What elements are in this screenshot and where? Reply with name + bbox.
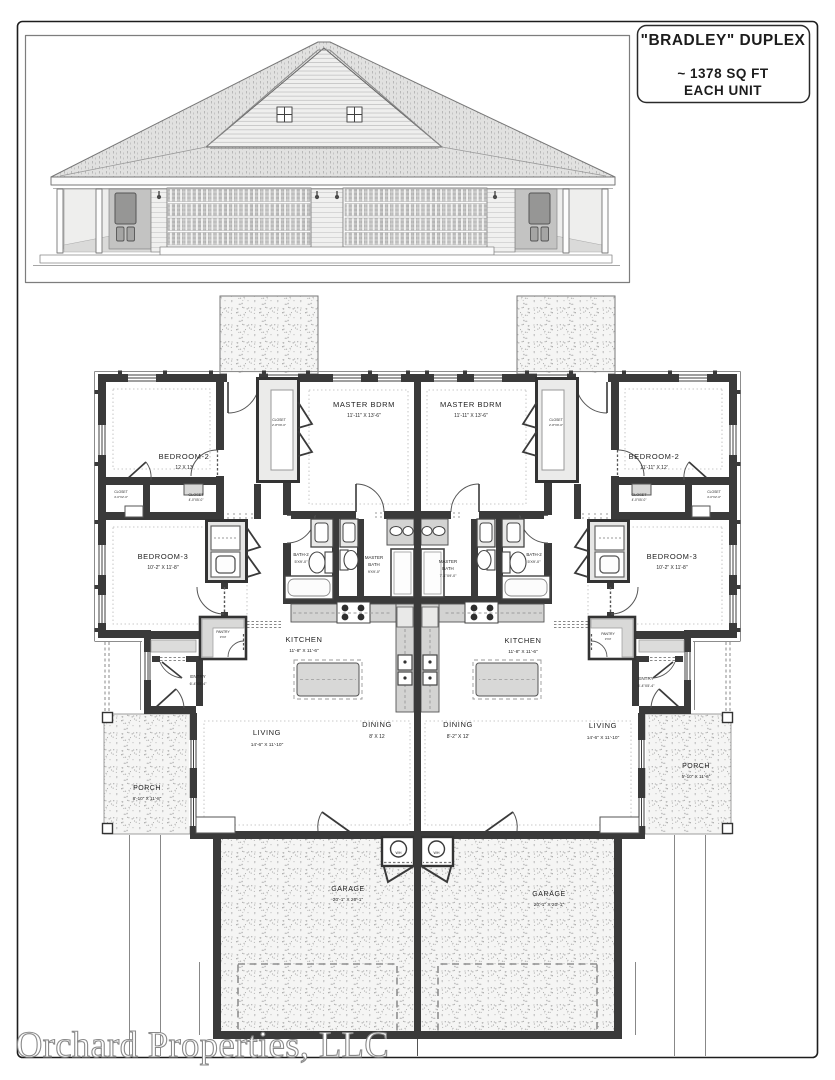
svg-text:CLOSET: CLOSET	[707, 490, 721, 494]
svg-text:20'-1" X 20'-1": 20'-1" X 20'-1"	[534, 902, 565, 908]
svg-text:10'-2" X 11'-8": 10'-2" X 11'-8"	[656, 565, 687, 571]
svg-text:PORCH: PORCH	[133, 785, 161, 792]
svg-text:2'-8"X9'-0": 2'-8"X9'-0"	[549, 423, 563, 427]
svg-text:"BRADLEY" DUPLEX: "BRADLEY" DUPLEX	[641, 32, 806, 49]
svg-text:11'-11" X 13'-6": 11'-11" X 13'-6"	[347, 413, 381, 419]
svg-text:PORCH: PORCH	[682, 763, 710, 770]
svg-text:CLOSET: CLOSET	[549, 418, 563, 422]
svg-text:CLOSET: CLOSET	[188, 493, 204, 497]
svg-text:BEDROOM-3: BEDROOM-3	[138, 552, 189, 561]
svg-text:10'-2" X 11'-8": 10'-2" X 11'-8"	[147, 565, 178, 571]
svg-text:PANTRY: PANTRY	[601, 632, 615, 636]
svg-text:MASTER: MASTER	[439, 559, 457, 564]
svg-text:5'-10" X 11'-6": 5'-10" X 11'-6"	[682, 774, 711, 779]
svg-text:6'-4"X5'-4": 6'-4"X5'-4"	[638, 684, 655, 688]
svg-text:ENTRY: ENTRY	[190, 674, 206, 679]
svg-text:DINING: DINING	[443, 720, 473, 729]
svg-text:7'-1"X9'-0": 7'-1"X9'-0"	[440, 574, 457, 578]
svg-text:WH: WH	[396, 851, 402, 855]
svg-text:12 X 13: 12 X 13	[175, 465, 192, 471]
svg-text:PANTRY: PANTRY	[216, 630, 230, 634]
svg-text:14'-6" X 11'-10": 14'-6" X 11'-10"	[251, 742, 284, 748]
svg-text:BATH: BATH	[442, 566, 453, 571]
svg-text:DINING: DINING	[362, 720, 392, 729]
svg-text:3'X3': 3'X3'	[605, 637, 612, 641]
svg-text:9'X9'-0": 9'X9'-0"	[368, 570, 381, 574]
svg-text:Orchard Properties, LLC: Orchard Properties, LLC	[16, 1024, 389, 1065]
svg-text:ENTRY: ENTRY	[638, 676, 654, 681]
svg-text:8'-10" X 11'-8": 8'-10" X 11'-8"	[133, 796, 162, 801]
svg-text:GARAGE: GARAGE	[331, 886, 365, 893]
svg-text:~ 1378 SQ FT: ~ 1378 SQ FT	[677, 66, 768, 81]
svg-text:MASTER BDRM: MASTER BDRM	[333, 400, 395, 409]
svg-text:2'-8"X9'-0": 2'-8"X9'-0"	[272, 423, 286, 427]
svg-text:LIVING: LIVING	[253, 728, 281, 737]
svg-text:5'X9'-0": 5'X9'-0"	[295, 560, 309, 564]
svg-text:20'-1" X 20'-1": 20'-1" X 20'-1"	[333, 897, 364, 903]
svg-text:4'-0"X2'-0": 4'-0"X2'-0"	[707, 495, 721, 499]
svg-text:8'-2" X 12': 8'-2" X 12'	[447, 734, 470, 740]
svg-text:MASTER BDRM: MASTER BDRM	[440, 400, 502, 409]
svg-text:14'-6" X 11'-10": 14'-6" X 11'-10"	[587, 735, 620, 741]
svg-text:5'X9'-0": 5'X9'-0"	[528, 560, 542, 564]
svg-text:BATH-2: BATH-2	[526, 552, 542, 557]
svg-text:CLOSET: CLOSET	[272, 418, 286, 422]
svg-text:3'X3': 3'X3'	[220, 635, 227, 639]
svg-text:MASTER: MASTER	[365, 555, 383, 560]
svg-text:4'-0"X5'-0": 4'-0"X5'-0"	[632, 498, 647, 502]
svg-text:11'-11" X 13'-6": 11'-11" X 13'-6"	[454, 413, 488, 419]
svg-text:11'-8" X 11'-6": 11'-8" X 11'-6"	[289, 648, 319, 654]
svg-text:4'-0"X2'-0": 4'-0"X2'-0"	[114, 495, 128, 499]
svg-text:8' X 12: 8' X 12	[369, 734, 385, 740]
svg-text:BATH-2: BATH-2	[293, 552, 309, 557]
svg-text:BEDROOM-3: BEDROOM-3	[647, 552, 698, 561]
svg-text:KITCHEN: KITCHEN	[504, 636, 541, 645]
svg-text:4'-0"X5'-0": 4'-0"X5'-0"	[189, 498, 204, 502]
svg-text:BEDROOM-2: BEDROOM-2	[159, 452, 210, 461]
svg-text:GARAGE: GARAGE	[532, 891, 566, 898]
svg-text:EACH UNIT: EACH UNIT	[684, 83, 762, 98]
svg-text:WH: WH	[434, 851, 440, 855]
svg-text:LIVING: LIVING	[589, 721, 617, 730]
svg-text:BATH: BATH	[368, 562, 379, 567]
svg-text:CLOSET: CLOSET	[114, 490, 128, 494]
svg-text:CLOSET: CLOSET	[631, 493, 647, 497]
svg-text:11'-8" X 11'-6": 11'-8" X 11'-6"	[508, 649, 538, 655]
svg-text:BEDROOM-2: BEDROOM-2	[629, 452, 680, 461]
svg-text:6'-4"X5'-4": 6'-4"X5'-4"	[190, 682, 207, 686]
svg-text:11'-11" X 12': 11'-11" X 12'	[640, 465, 667, 471]
svg-text:KITCHEN: KITCHEN	[285, 635, 322, 644]
